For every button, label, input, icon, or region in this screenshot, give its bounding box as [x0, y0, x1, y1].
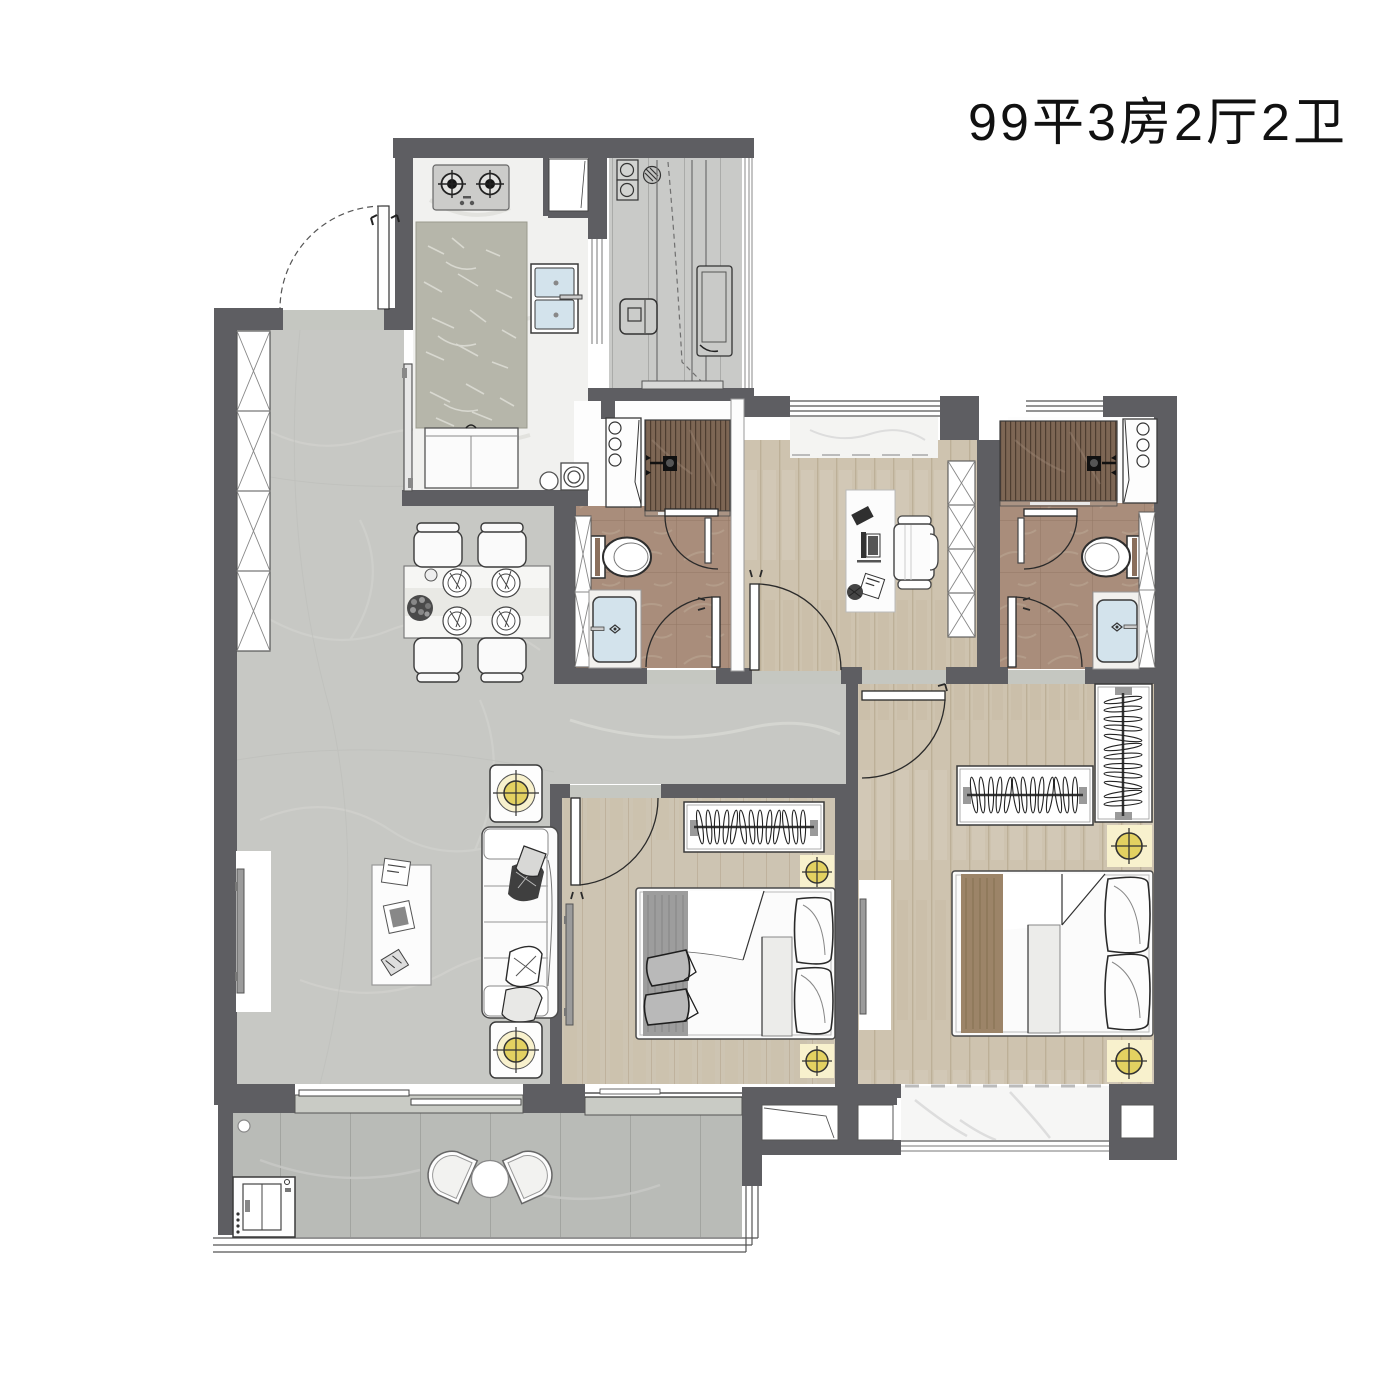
svg-text:3: 3 [1087, 94, 1116, 152]
svg-text:9: 9 [968, 94, 999, 152]
svg-text:2: 2 [1174, 94, 1203, 152]
svg-text:2: 2 [1261, 94, 1290, 152]
svg-text:9: 9 [1000, 94, 1029, 152]
